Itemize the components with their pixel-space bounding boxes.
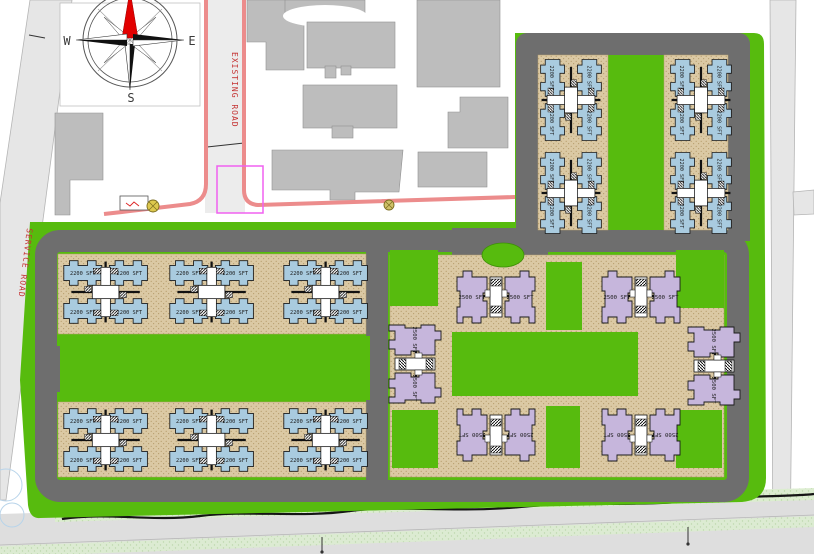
compass-label-west: W [63, 34, 71, 48]
site-plan-drawing: 2200 SFT 2200 SFT 2200 SFT 2200 SFT 2500… [0, 0, 814, 554]
existing-road-label: EXISTING ROAD [230, 52, 239, 128]
traffic-island [482, 243, 524, 267]
survey-marker-icon [147, 200, 159, 212]
compass-label-south: S [127, 91, 134, 105]
existing-building [55, 113, 103, 215]
survey-marker-icon [384, 200, 394, 210]
east-road-surface [770, 0, 796, 554]
compass-rose: W E S [60, 0, 200, 106]
gate-marker [120, 196, 148, 210]
site-plan-canvas: 2200 SFT 2200 SFT 2200 SFT 2200 SFT 2500… [0, 0, 814, 554]
east-road-branch [793, 190, 814, 215]
compass-label-east: E [188, 34, 195, 48]
